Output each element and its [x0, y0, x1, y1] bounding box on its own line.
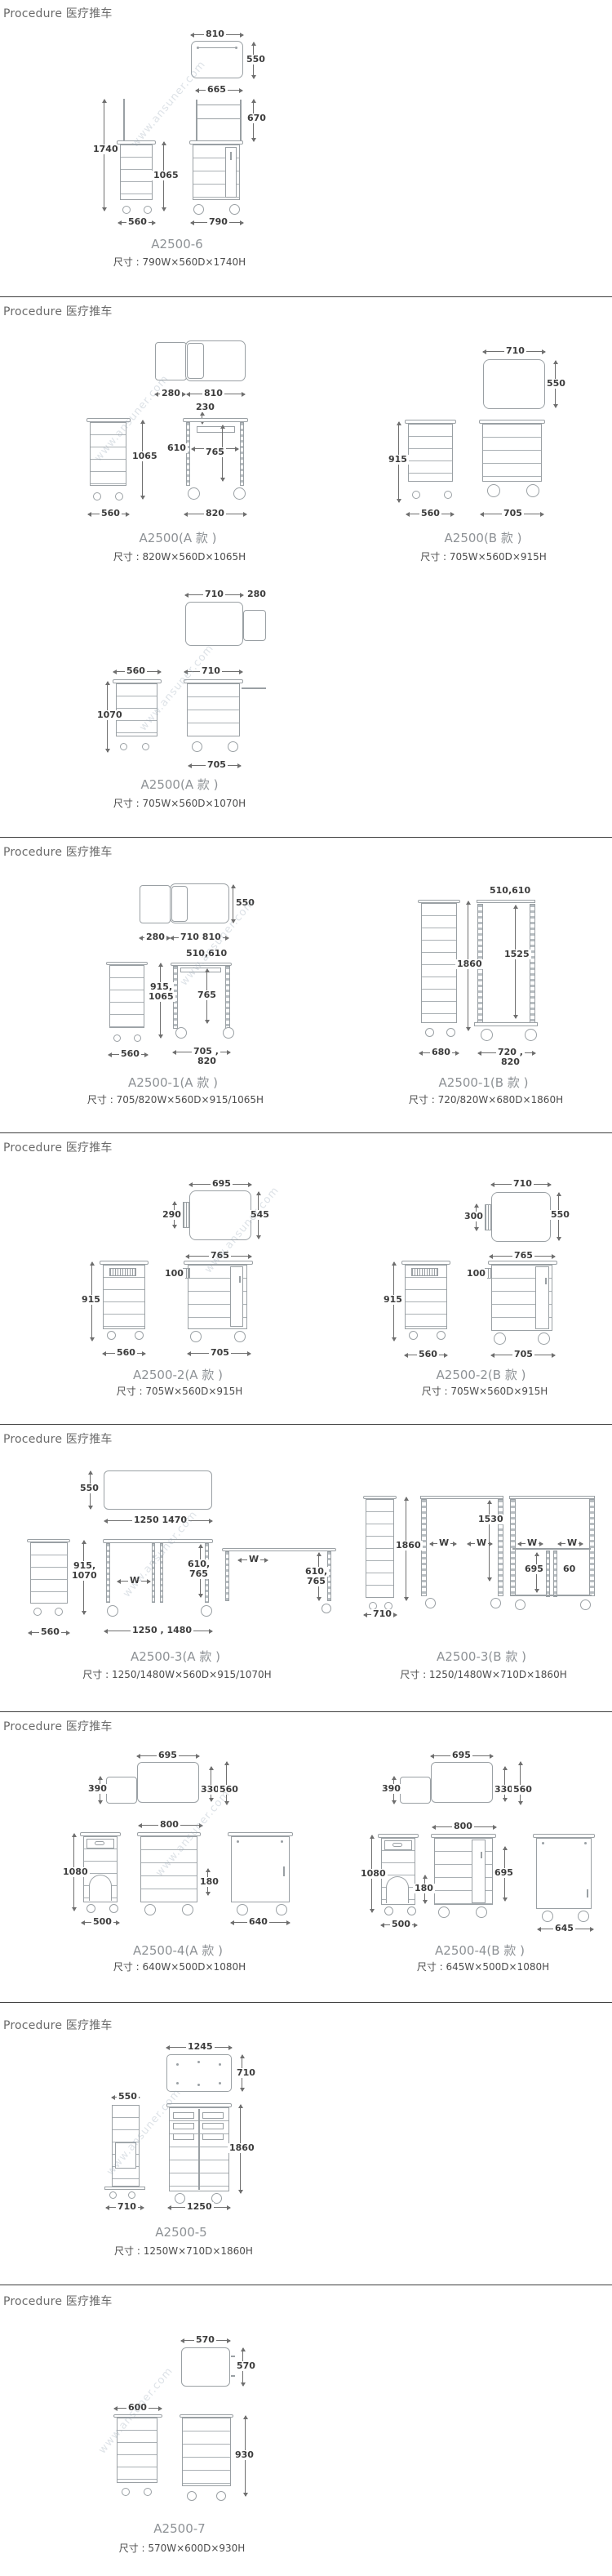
- bin-box: [202, 2133, 224, 2140]
- caster-wheel: [437, 1331, 446, 1340]
- side-top-board: [418, 900, 460, 903]
- caster-wheel: [182, 1904, 193, 1915]
- caster-wheel: [109, 1904, 118, 1913]
- dim-total-height: 1860: [394, 1541, 423, 1550]
- dim-top-depth: 550: [78, 1484, 100, 1493]
- figure-size: 尺寸 : 790W×560D×1740H: [78, 255, 282, 269]
- dim-bay-width: W: [247, 1555, 260, 1564]
- caster-wheel: [481, 1029, 493, 1041]
- caster-wheel: [201, 1605, 212, 1617]
- center-divider: [198, 2109, 200, 2190]
- dim-top-width: 710: [504, 346, 526, 356]
- figure-size: 尺寸 : 570W×600D×930H: [80, 2541, 284, 2555]
- base-bar: [510, 1595, 592, 1596]
- base-plate: [474, 1022, 538, 1026]
- figure-size: 尺寸 : 705W×560D×915H: [379, 1384, 591, 1398]
- dim-body-height: 915: [387, 455, 409, 465]
- dim-front-width: 705: [206, 760, 228, 770]
- figure-caption: A2500-2(A 款 ): [104, 1366, 251, 1383]
- dim-vent-depth: 300: [463, 1212, 485, 1221]
- caster-wheel: [438, 1906, 450, 1918]
- caster-wheel: [229, 204, 240, 215]
- section-header: Procedure 医疗推车: [3, 843, 113, 860]
- side-top-board: [27, 1539, 70, 1542]
- drawer-handle: [392, 1843, 402, 1847]
- caster-wheel: [237, 1904, 248, 1915]
- drawer-door: [472, 1840, 486, 1903]
- dim-bay-width: W: [526, 1538, 539, 1548]
- caster-wheel: [93, 492, 101, 501]
- dim-side-width: 560: [115, 1348, 137, 1358]
- figure-caption: A2500(B 款 ): [414, 529, 552, 546]
- top-view: [166, 2054, 232, 2092]
- section-6: Procedure 医疗推车 www.ansuner.com 695 390 3…: [0, 1713, 612, 2002]
- section-5: Procedure 医疗推车 www.ansuner.com 550 1250 …: [0, 1426, 612, 1711]
- caster-wheel: [134, 1034, 141, 1042]
- dim-extension-depth: 390: [86, 1784, 109, 1794]
- screw-dot: [542, 1842, 544, 1844]
- dim-top-depth: 550: [549, 1210, 571, 1220]
- figure-caption: A2500-6: [104, 237, 251, 251]
- figure-size: 尺寸 : 705W×560D×915H: [73, 1384, 286, 1398]
- caster-wheel: [526, 484, 539, 497]
- top-view-dot: [219, 2063, 221, 2066]
- dim-side-width: 560: [39, 1627, 61, 1637]
- dim-inner-height: 1530: [477, 1515, 505, 1524]
- divider-line: [0, 2285, 612, 2285]
- side-view-body: [30, 1542, 68, 1604]
- section-4: Procedure 医疗推车 www.ansuner.com 695 545 2…: [0, 1134, 612, 1424]
- slotted-post: [240, 422, 244, 486]
- dim-side-width: 500: [390, 1920, 412, 1929]
- slotted-post: [225, 966, 230, 1029]
- slotted-post: [530, 904, 535, 1024]
- dim-front-width-2: 820: [499, 1057, 521, 1067]
- caster-wheel: [188, 487, 200, 500]
- vent-grille: [485, 1204, 491, 1230]
- front-top-board: [479, 420, 545, 424]
- bin-box: [173, 2133, 194, 2140]
- dim-side-width: 560: [126, 217, 149, 227]
- tray-bar: [197, 426, 235, 433]
- drawer-door: [230, 1266, 243, 1327]
- dim-inner-height: 1525: [503, 950, 531, 959]
- side-top-board: [100, 1261, 149, 1265]
- caster-wheel: [407, 1906, 416, 1915]
- caster-wheel: [494, 1332, 506, 1345]
- side-view-body: [408, 424, 453, 482]
- dim-inner-height: 765: [196, 990, 218, 1000]
- door-handle: [239, 1276, 241, 1283]
- dim-rear-width: 645: [553, 1924, 575, 1933]
- section-1: Procedure 医疗推车 www.ansuner.com 810 550 6…: [0, 0, 612, 296]
- dim-top-width: 570: [194, 2335, 216, 2345]
- caster-wheel: [446, 1028, 455, 1037]
- section-header: Procedure 医疗推车: [3, 1430, 113, 1447]
- front-view-body: [187, 683, 240, 736]
- side-top-board: [106, 962, 148, 965]
- caster-wheel: [120, 743, 127, 750]
- screw-dot: [584, 1842, 587, 1844]
- dim-top-width: 710: [203, 589, 225, 599]
- caster-wheel: [228, 741, 238, 752]
- section-header: Procedure 医疗推车: [3, 2293, 113, 2309]
- dim-frame-height: 670: [246, 113, 268, 123]
- dim-top-width: 695: [211, 1179, 233, 1189]
- figure-caption: A2500-7: [106, 2521, 253, 2536]
- dim-front-width: 1250: [185, 2202, 214, 2212]
- dim-front-width-2: 820: [196, 1057, 218, 1066]
- catalog-page: Procedure 医疗推车 www.ansuner.com 810 550 6…: [0, 0, 612, 2576]
- dim-inner-2: 765: [188, 1569, 210, 1579]
- dim-front-width: 705: [512, 1350, 534, 1359]
- top-view: [181, 2347, 230, 2387]
- top-view-dot: [197, 2061, 200, 2063]
- caster-wheel: [107, 1605, 118, 1617]
- dim-front-width: 705: [209, 1348, 231, 1358]
- dim-extension: 280: [144, 932, 166, 942]
- dim-top-depth: 570: [235, 2361, 257, 2371]
- caster-wheel: [115, 492, 123, 501]
- center-post: [546, 1550, 550, 1597]
- divider-line: [0, 2002, 612, 2003]
- open-bay-arch: [386, 1876, 409, 1903]
- dim-rear-width: 640: [247, 1917, 269, 1927]
- caster-wheel: [109, 2191, 117, 2199]
- front-top-board: [103, 1539, 213, 1543]
- caster-wheel: [33, 1608, 42, 1616]
- dim-front-width: 820: [204, 509, 226, 518]
- dim-top-depth: 550: [545, 379, 567, 389]
- dim-side-width: 560: [419, 509, 441, 518]
- figure-caption: A2500-3(B 款 ): [408, 1648, 555, 1665]
- caster-wheel: [144, 206, 152, 214]
- section-header: Procedure 医疗推车: [3, 1718, 113, 1734]
- caster-wheel: [490, 1598, 501, 1608]
- divider-line: [0, 296, 612, 297]
- section-header: Procedure 医疗推车: [3, 5, 113, 21]
- base-plate: [104, 2187, 145, 2190]
- figure-size: 尺寸 : 720/820W×680D×1860H: [390, 1092, 582, 1106]
- divider-line: [0, 837, 612, 838]
- front-view-body: [482, 424, 542, 482]
- dim-side-width: 560: [119, 1049, 141, 1059]
- figure-caption: A2500(A 款 ): [104, 529, 251, 546]
- top-view-extension: [400, 1777, 431, 1804]
- dim-top-depth: 550: [245, 55, 267, 65]
- open-bay-arch: [89, 1875, 112, 1901]
- side-top-board: [80, 1832, 121, 1836]
- figure-caption: A2500-2(B 款 ): [410, 1366, 552, 1383]
- bin-box: [173, 2123, 194, 2129]
- caster-wheel: [322, 1604, 331, 1613]
- bin-box: [202, 2112, 224, 2119]
- iv-pole: [123, 99, 125, 141]
- side-top-board: [401, 1261, 450, 1265]
- dim-inner-width: 610: [166, 443, 188, 453]
- dim-body-height: 1065: [152, 171, 180, 180]
- dim-tray: 230: [194, 403, 216, 412]
- caster-wheel: [578, 1911, 589, 1922]
- dim-door-height: 695: [493, 1868, 515, 1878]
- top-view-tray: [187, 343, 204, 379]
- figure-size: 尺寸 : 1250W×710D×1860H: [65, 2244, 302, 2258]
- caster-wheel: [538, 1332, 550, 1345]
- dim-post-gap: 60: [561, 1564, 577, 1574]
- top-view-dot: [219, 2082, 221, 2084]
- figure-size: 尺寸 : 705/820W×560D×915/1065H: [61, 1092, 290, 1106]
- dim-side-width: 560: [100, 509, 122, 518]
- door-handle: [283, 1866, 285, 1876]
- divider-line: [0, 1711, 612, 1712]
- dim-front-top-width: 710: [200, 666, 222, 676]
- dim-vent-depth: 290: [161, 1210, 183, 1220]
- figure-caption: A2500-1(B 款 ): [412, 1074, 555, 1091]
- caster-wheel: [412, 491, 420, 499]
- caster-wheel: [542, 1911, 553, 1922]
- vent-grille: [109, 1268, 136, 1276]
- figure-size: 尺寸 : 1250/1480W×710D×1860H: [384, 1667, 583, 1681]
- dim-total-height: 1080: [61, 1867, 90, 1877]
- dim-top-width: 810: [202, 389, 224, 398]
- bin-box: [202, 2123, 224, 2129]
- frame-post: [196, 100, 197, 142]
- side-top-board: [378, 1834, 419, 1838]
- caster-wheel: [384, 1906, 393, 1915]
- drawer-door: [535, 1266, 549, 1329]
- front-top-bar: [509, 1496, 595, 1499]
- side-view-body: [109, 965, 144, 1028]
- dim-bay-width: W: [565, 1538, 579, 1548]
- dim-total-height: 1080: [359, 1869, 388, 1879]
- dim-total-height: 1860: [455, 959, 484, 969]
- figure-size: 尺寸 : 1250/1480W×560D×915/1070H: [51, 1667, 304, 1681]
- dim-inner-2: 765: [305, 1577, 327, 1586]
- top-view-dot: [176, 2082, 179, 2084]
- dim-side-width: 680: [430, 1048, 452, 1057]
- caster-wheel: [409, 1331, 418, 1340]
- front-top-bar: [420, 1496, 503, 1499]
- dim-front-width: 1250 , 1480: [131, 1626, 193, 1635]
- dim-top-width: 710: [512, 1179, 534, 1189]
- dim-vent-height: 100: [163, 1269, 185, 1279]
- section-header: Procedure 医疗推车: [3, 303, 113, 319]
- dimension-line: [520, 1762, 521, 1804]
- caster-wheel: [425, 1028, 434, 1037]
- dim-height-2: 1065: [147, 992, 175, 1002]
- caster-wheel: [525, 1029, 537, 1041]
- dim-body-height: 915: [80, 1295, 102, 1305]
- slotted-post: [106, 1543, 110, 1603]
- caster-wheel: [175, 2193, 185, 2204]
- slotted-post: [186, 422, 190, 486]
- dim-front-width: 705: [502, 509, 524, 518]
- caster-wheel: [444, 491, 452, 499]
- rear-top-board: [533, 1834, 595, 1838]
- dim-shelf-height: 695: [523, 1564, 545, 1574]
- top-view-tray: [171, 886, 188, 922]
- top-view-extension: [106, 1777, 137, 1804]
- top-view: [104, 1470, 212, 1510]
- section-3: Procedure 医疗推车 www.ansuner.com 550 280 7…: [0, 839, 612, 1131]
- dim-body-height: 915: [382, 1295, 404, 1305]
- caster-wheel: [107, 1331, 116, 1340]
- top-view-dot: [197, 2084, 200, 2086]
- slotted-post: [225, 1551, 229, 1601]
- rail-end-dot: [197, 47, 199, 49]
- mid-shelf: [512, 1548, 591, 1550]
- caster-wheel: [135, 1331, 144, 1340]
- dim-vent-height: 100: [465, 1269, 487, 1279]
- caster-wheel: [86, 1904, 95, 1913]
- dim-top-width: 810: [204, 29, 226, 39]
- dimension-line: [104, 100, 104, 211]
- caster-wheel: [144, 1904, 156, 1915]
- dim-body-height: 1070: [95, 710, 124, 720]
- caster-wheel: [175, 1027, 187, 1039]
- dim-top-width: 1245: [186, 2042, 215, 2052]
- dim-total-height: 930: [233, 2450, 255, 2460]
- bin-box: [173, 2112, 194, 2119]
- top-view: [491, 1192, 551, 1242]
- rear-top-board: [228, 1832, 293, 1836]
- dim-front-width: 790: [207, 217, 229, 227]
- caster-wheel: [223, 1027, 234, 1039]
- top-view: [483, 359, 545, 409]
- caster-wheel: [142, 743, 149, 750]
- dim-top-depth: 710: [235, 2068, 257, 2078]
- dim-total-height: 1860: [228, 2143, 256, 2153]
- caster-wheel: [113, 1034, 121, 1042]
- figure-caption: A2500-5: [108, 2225, 255, 2240]
- front-view-body: [182, 2418, 231, 2486]
- caster-wheel: [55, 1608, 63, 1616]
- dim-body-height: 1065: [131, 452, 159, 461]
- dim-side-width: 710: [116, 2202, 138, 2212]
- dim-inner-height: 765: [204, 447, 226, 457]
- frame-bar: [196, 105, 242, 105]
- dim-front-top-width: 800: [158, 1820, 180, 1830]
- caster-wheel: [190, 1331, 202, 1342]
- handle-mark: [231, 2356, 235, 2357]
- side-top-board: [363, 1496, 397, 1499]
- section-header: Procedure 医疗推车: [3, 1139, 113, 1155]
- dimension-line: [489, 1501, 490, 1581]
- caster-wheel: [276, 1904, 287, 1915]
- side-top-board: [405, 420, 456, 424]
- top-view-extension: [243, 610, 266, 641]
- dim-front-top-width: 800: [452, 1822, 474, 1831]
- front-top-board: [488, 1261, 557, 1265]
- figure-size: 尺寸 : 640W×500D×1080H: [73, 1960, 286, 1973]
- section-header: Procedure 医疗推车: [3, 2017, 113, 2033]
- door-handle: [481, 1852, 482, 1858]
- door-handle: [545, 1278, 547, 1284]
- top-view: [185, 602, 243, 646]
- figure-size: 尺寸 : 705W×560D×915H: [392, 549, 575, 563]
- dim-extension: 280: [246, 589, 268, 599]
- dim-rail-width: 510,610: [488, 886, 532, 896]
- side-top-board: [113, 679, 162, 683]
- side-rail: [242, 687, 266, 689]
- dim-total-depth: 560: [512, 1785, 534, 1795]
- dim-base-height: 180: [413, 1884, 435, 1893]
- dim-top-width: 695: [450, 1751, 472, 1760]
- figure-caption: A2500-4(B 款 ): [406, 1942, 553, 1959]
- side-view-body: [366, 1499, 394, 1598]
- rear-view-body: [536, 1838, 592, 1909]
- divider-line: [0, 1424, 612, 1425]
- figure-size: 尺寸 : 645W×500D×1080H: [377, 1960, 589, 1973]
- vent-grille: [411, 1268, 438, 1276]
- screw-dot: [281, 1840, 283, 1843]
- caster-wheel: [122, 206, 131, 214]
- dim-base-height: 180: [198, 1877, 220, 1887]
- caster-wheel: [122, 2488, 130, 2496]
- door-handle: [587, 1889, 588, 1898]
- dimension-line: [515, 905, 516, 1018]
- dim-inner-width: 765: [512, 1251, 534, 1261]
- top-view-dot: [176, 2063, 179, 2066]
- side-view-body: [120, 145, 153, 200]
- front-top-board: [166, 2103, 232, 2107]
- figure-size: 尺寸 : 820W×560D×1065H: [78, 549, 282, 563]
- rear-view-body: [231, 1836, 290, 1902]
- side-view-body: [421, 903, 457, 1023]
- drawer-handle: [95, 1841, 104, 1845]
- center-post: [553, 1550, 557, 1597]
- dim-height-2: 1070: [70, 1571, 99, 1581]
- dim-total-height: 1740: [91, 145, 120, 154]
- top-view-rail-line: [197, 47, 237, 48]
- third-view-top-board: [222, 1548, 336, 1551]
- caster-wheel: [216, 2491, 226, 2501]
- caster-wheel: [515, 1599, 526, 1610]
- section-8: Procedure 医疗推车 www.ansuner.com 570 570 6…: [0, 2286, 612, 2576]
- dim-side-top-width: 550: [117, 2092, 139, 2102]
- caster-wheel: [128, 2191, 135, 2199]
- figure-caption: A2500-1(A 款 ): [100, 1074, 246, 1091]
- dim-side-width: 560: [125, 666, 147, 676]
- handle-mark: [231, 2375, 235, 2377]
- vent-grille: [183, 1202, 189, 1228]
- caster-wheel: [476, 1906, 487, 1918]
- front-top-bar: [477, 900, 535, 903]
- dim-side-width: 560: [417, 1350, 439, 1359]
- caster-wheel: [193, 204, 204, 215]
- front-top-board: [180, 2414, 233, 2418]
- front-top-board: [183, 418, 248, 422]
- caster-wheel: [187, 2491, 197, 2501]
- screw-dot: [237, 1840, 239, 1843]
- dim-side-width: 710: [371, 1609, 393, 1619]
- caster-wheel: [234, 1331, 246, 1342]
- dim-top-width: 695: [157, 1751, 179, 1760]
- dim-frame-width: 665: [206, 85, 228, 95]
- caster-wheel: [233, 487, 246, 500]
- divider-line: [0, 1132, 612, 1133]
- dim-side-width: 500: [91, 1917, 113, 1927]
- dim-bay-width: W: [475, 1538, 488, 1548]
- door-handle: [230, 152, 232, 160]
- dim-extension-depth: 390: [380, 1784, 402, 1794]
- front-top-board: [184, 679, 243, 683]
- caster-wheel: [580, 1599, 591, 1610]
- top-view-extension: [140, 885, 171, 923]
- caster-wheel: [192, 741, 202, 752]
- top-view: [431, 1762, 493, 1803]
- section-2: Procedure 医疗推车 www.ansuner.com www.ansun…: [0, 298, 612, 837]
